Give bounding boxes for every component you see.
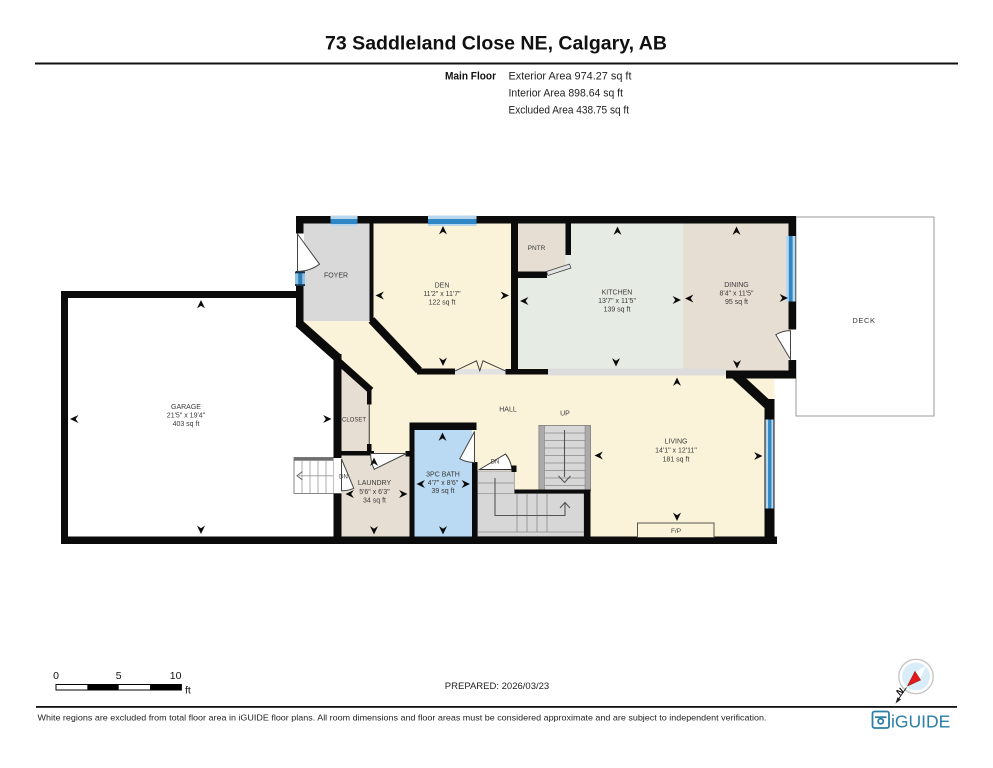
svg-text:10: 10: [170, 670, 182, 682]
svg-text:73 Saddleland Close NE, Calgar: 73 Saddleland Close NE, Calgary, AB: [325, 33, 667, 55]
svg-text:11'2" x 11'7": 11'2" x 11'7": [423, 291, 461, 298]
svg-text:UP: UP: [560, 411, 570, 418]
svg-text:HALL: HALL: [499, 407, 517, 414]
svg-text:DECK: DECK: [852, 316, 875, 325]
svg-text:122 sq ft: 122 sq ft: [429, 300, 456, 307]
svg-text:F/P: F/P: [671, 528, 681, 535]
svg-text:5'6" x 6'3": 5'6" x 6'3": [359, 489, 390, 496]
svg-text:95 sq ft: 95 sq ft: [725, 299, 748, 306]
svg-text:ft: ft: [185, 685, 191, 697]
svg-text:DN: DN: [491, 460, 500, 466]
svg-text:PREPARED: 2026/03/23: PREPARED: 2026/03/23: [445, 681, 549, 692]
svg-text:Main Floor: Main Floor: [445, 71, 497, 83]
svg-text:34 sq ft: 34 sq ft: [363, 498, 386, 505]
svg-text:FOYER: FOYER: [324, 273, 348, 280]
svg-text:0: 0: [53, 670, 59, 682]
svg-text:LIVING: LIVING: [665, 439, 688, 446]
svg-text:8'4" x 11'5": 8'4" x 11'5": [720, 291, 754, 298]
svg-text:PNTR: PNTR: [528, 245, 546, 252]
svg-text:DEN: DEN: [435, 283, 450, 290]
svg-text:3PC BATH: 3PC BATH: [426, 472, 460, 479]
svg-text:13'7" x 11'5": 13'7" x 11'5": [598, 298, 636, 305]
svg-text:Exterior Area 974.27 sq ft: Exterior Area 974.27 sq ft: [509, 71, 632, 83]
svg-text:139 sq ft: 139 sq ft: [604, 307, 631, 314]
svg-text:DN: DN: [339, 475, 348, 481]
svg-text:181 sq ft: 181 sq ft: [663, 457, 690, 464]
svg-text:14'1" x 12'11": 14'1" x 12'11": [655, 448, 697, 455]
svg-text:DINING: DINING: [724, 282, 749, 289]
svg-text:4'7" x 8'6": 4'7" x 8'6": [428, 480, 459, 487]
svg-text:5: 5: [116, 670, 122, 682]
svg-text:Interior Area 898.64 sq ft: Interior Area 898.64 sq ft: [509, 88, 624, 100]
svg-text:KITCHEN: KITCHEN: [602, 290, 633, 297]
svg-text:403 sq ft: 403 sq ft: [173, 421, 200, 428]
svg-text:LAUNDRY: LAUNDRY: [358, 480, 392, 487]
svg-text:Excluded Area 438.75 sq ft: Excluded Area 438.75 sq ft: [509, 105, 630, 117]
svg-text:GARAGE: GARAGE: [171, 404, 201, 411]
svg-text:39 sq ft: 39 sq ft: [432, 488, 455, 495]
svg-text:iGUIDE: iGUIDE: [891, 712, 950, 732]
svg-text:White regions are excluded fro: White regions are excluded from total fl…: [38, 713, 767, 723]
svg-text:CLOSET: CLOSET: [342, 418, 366, 424]
svg-text:21'5" x 19'4": 21'5" x 19'4": [167, 413, 206, 420]
